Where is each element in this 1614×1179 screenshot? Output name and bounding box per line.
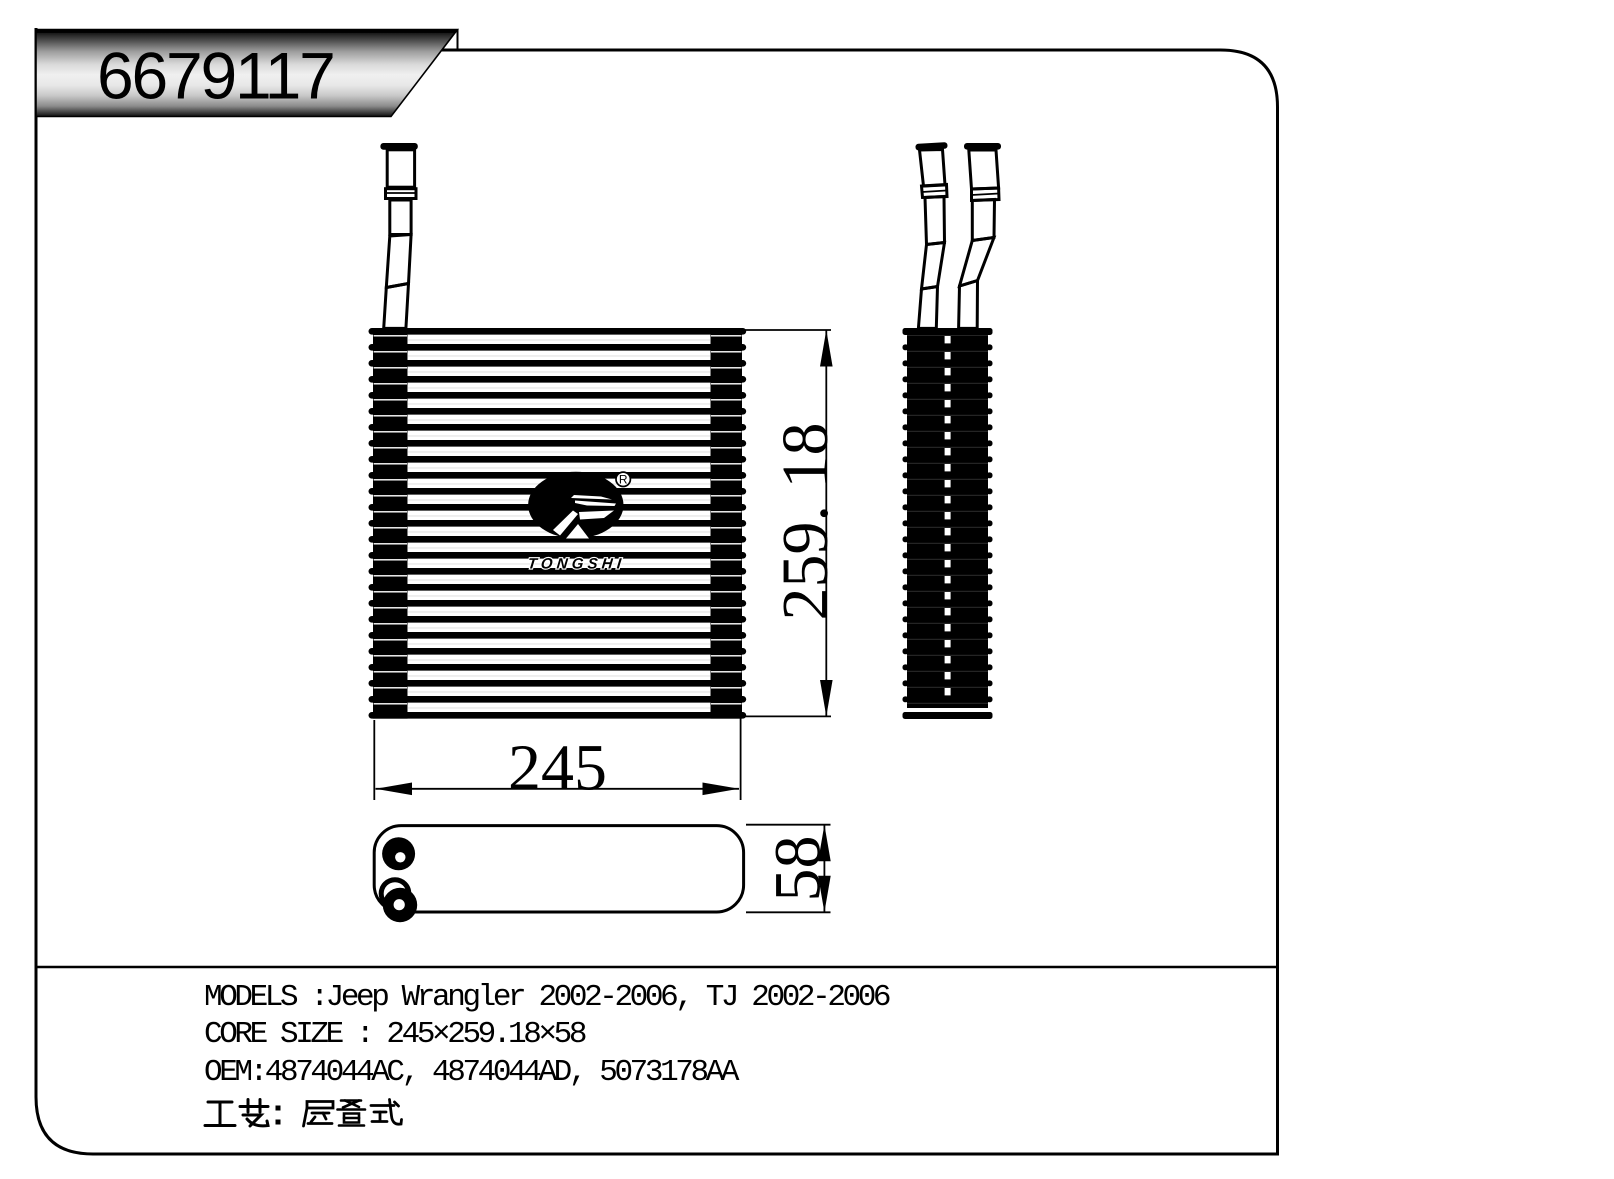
svg-text:245: 245 xyxy=(508,732,607,805)
svg-text:259. 18: 259. 18 xyxy=(769,423,842,621)
svg-text:R: R xyxy=(619,473,628,487)
svg-text:6679117: 6679117 xyxy=(97,39,334,113)
svg-text:58: 58 xyxy=(762,836,835,902)
svg-text:MODELS :Jeep Wrangler 2002-200: MODELS :Jeep Wrangler 2002-2006, TJ 2002… xyxy=(204,980,890,1015)
svg-text:OEM:4874044AC, 4874044AD, 50: OEM:4874044AC, 4874044AD, 5073178AA xyxy=(204,1055,740,1090)
svg-text:CORE SIZE : 245×259.18×58: CORE SIZE : 245×259.18×58 xyxy=(204,1017,586,1052)
svg-text:TONGSHI: TONGSHI xyxy=(527,556,626,573)
